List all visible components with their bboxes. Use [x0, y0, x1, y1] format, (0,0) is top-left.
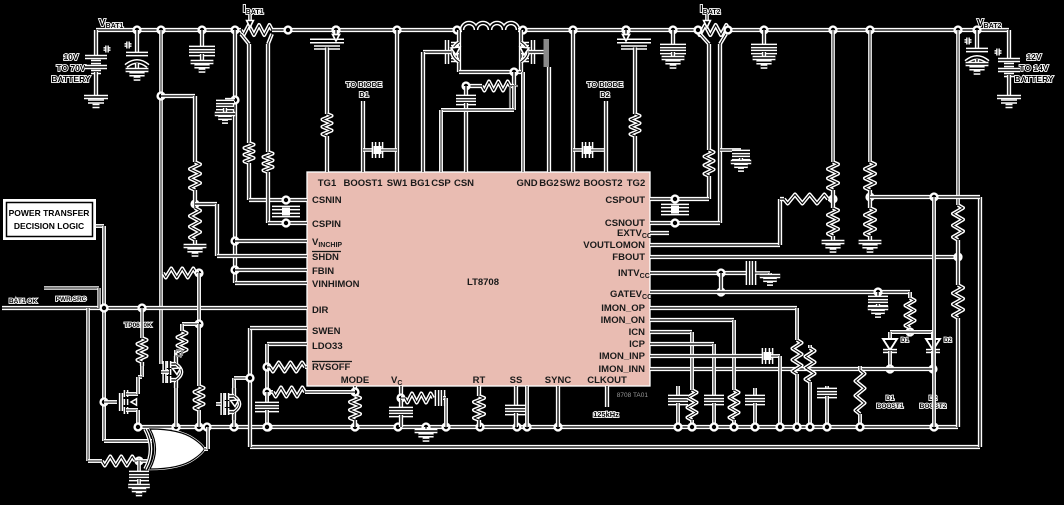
svg-text:SYNC: SYNC	[545, 375, 572, 386]
svg-text:TO 70V: TO 70V	[56, 63, 85, 73]
svg-text:FBIN: FBIN	[312, 266, 334, 277]
svg-text:DECISION LOGIC: DECISION LOGIC	[14, 221, 84, 231]
svg-text:GND: GND	[516, 178, 537, 189]
svg-text:TP0610K: TP0610K	[124, 322, 152, 329]
svg-text:D2: D2	[944, 338, 952, 344]
svg-text:IMON_OP: IMON_OP	[601, 303, 645, 314]
svg-text:TO DIODE: TO DIODE	[346, 80, 382, 89]
svg-text:LT8708: LT8708	[467, 277, 499, 288]
svg-text:SW1: SW1	[387, 178, 408, 189]
svg-text:CSN: CSN	[454, 178, 474, 189]
svg-text:BOOST1: BOOST1	[877, 403, 904, 410]
svg-text:SHDN: SHDN	[312, 252, 339, 263]
svg-text:CSNIN: CSNIN	[312, 195, 342, 206]
svg-text:RVSOFF: RVSOFF	[312, 362, 351, 373]
svg-text:10V: 10V	[63, 52, 78, 62]
svg-text:POWER TRANSFER: POWER TRANSFER	[9, 208, 90, 218]
svg-text:BAT1 OK: BAT1 OK	[9, 298, 37, 305]
svg-text:LDO33: LDO33	[312, 341, 343, 352]
svg-text:RT: RT	[473, 375, 486, 386]
svg-text:IMON_ON: IMON_ON	[601, 315, 645, 326]
svg-text:FBOUT: FBOUT	[612, 252, 645, 263]
svg-text:CSPIN: CSPIN	[312, 219, 341, 230]
svg-text:SW2: SW2	[560, 178, 581, 189]
svg-text:D1: D1	[359, 90, 369, 99]
svg-text:CSPOUT: CSPOUT	[605, 195, 645, 206]
svg-text:ICP: ICP	[629, 339, 646, 350]
svg-text:BATTERY: BATTERY	[51, 74, 91, 84]
svg-text:BOOST2: BOOST2	[583, 178, 622, 189]
svg-text:BG2: BG2	[539, 178, 559, 189]
svg-text:SS: SS	[510, 375, 523, 386]
svg-text:BOOST1: BOOST1	[343, 178, 383, 189]
svg-text:BATTERY: BATTERY	[1014, 74, 1054, 84]
svg-text:125kHz: 125kHz	[593, 410, 619, 419]
svg-text:PWR SRC: PWR SRC	[56, 296, 87, 303]
svg-text:TO 14V: TO 14V	[1019, 63, 1048, 73]
svg-text:D2: D2	[600, 90, 610, 99]
svg-text:D1: D1	[901, 338, 909, 344]
svg-text:12V: 12V	[1026, 52, 1041, 62]
svg-text:TO DIODE: TO DIODE	[587, 80, 623, 89]
svg-text:MODE: MODE	[341, 375, 370, 386]
svg-text:CLKOUT: CLKOUT	[587, 375, 627, 386]
svg-text:BG1: BG1	[410, 178, 430, 189]
svg-text:D1: D1	[886, 395, 895, 402]
svg-text:TG1: TG1	[318, 178, 337, 189]
svg-text:8708 TA01: 8708 TA01	[617, 392, 649, 399]
svg-text:IMON_INP: IMON_INP	[599, 351, 646, 362]
svg-text:DIR: DIR	[312, 305, 329, 316]
svg-text:TG2: TG2	[627, 178, 645, 189]
svg-text:VOUTLOMON: VOUTLOMON	[583, 240, 645, 251]
svg-text:ICN: ICN	[629, 327, 646, 338]
svg-text:CSP: CSP	[431, 178, 451, 189]
svg-text:IMON_INN: IMON_INN	[599, 364, 646, 375]
svg-text:SWEN: SWEN	[312, 326, 341, 337]
svg-text:VINHIMON: VINHIMON	[312, 279, 360, 290]
